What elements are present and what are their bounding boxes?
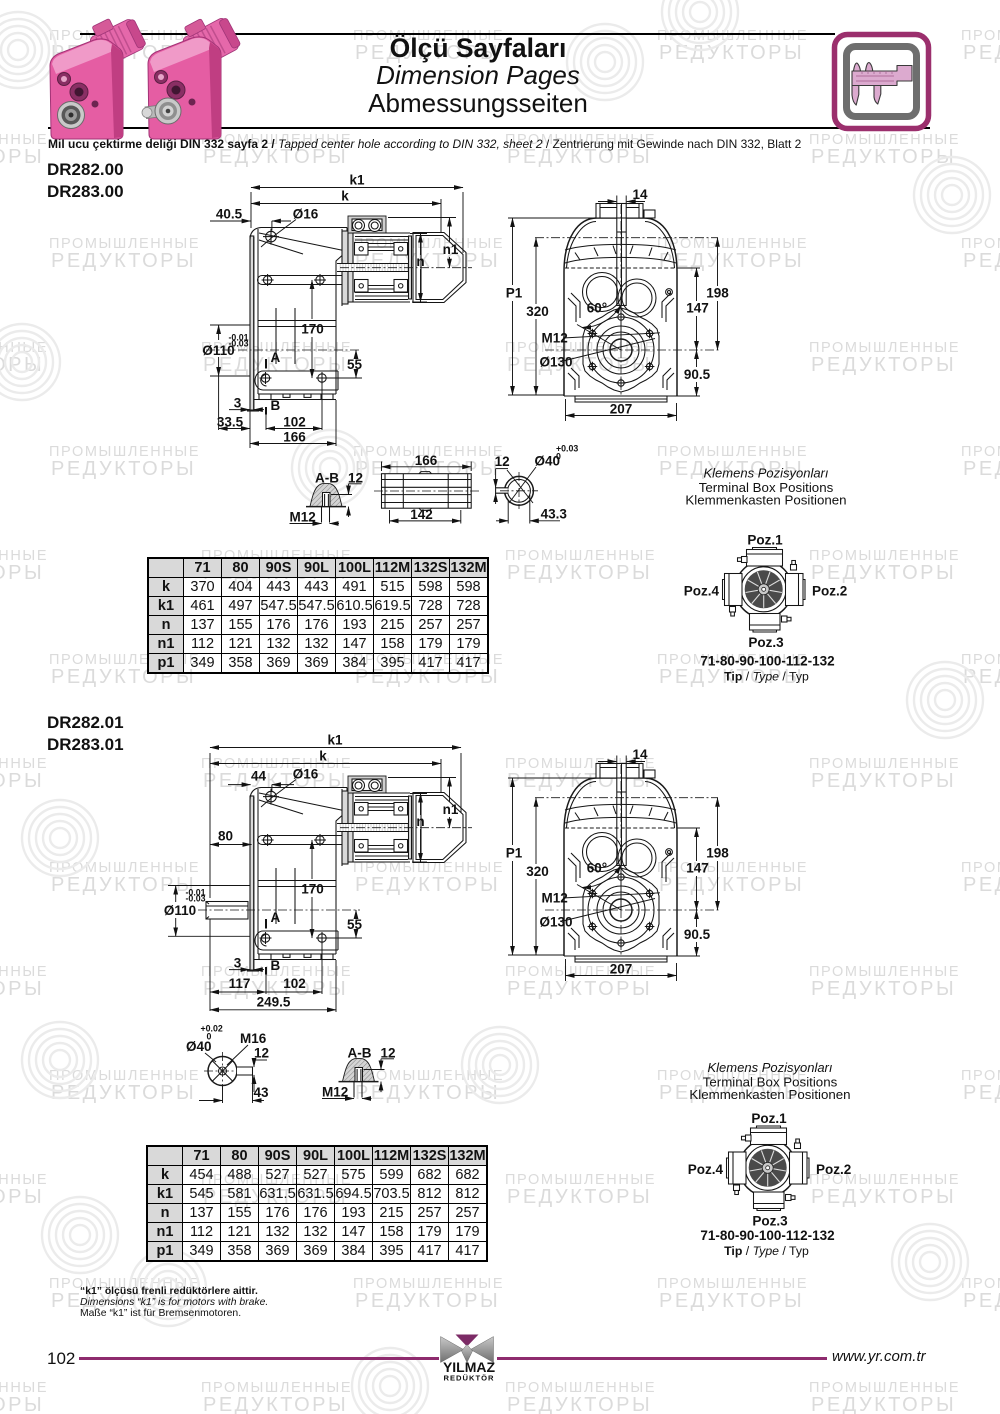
- svg-text:33.5: 33.5: [217, 414, 244, 429]
- svg-text:14: 14: [632, 187, 648, 202]
- svg-text:Poz.1: Poz.1: [747, 533, 783, 548]
- svg-text:M12: M12: [290, 510, 316, 525]
- svg-text:A-B: A-B: [315, 470, 339, 485]
- svg-text:117: 117: [229, 976, 251, 991]
- svg-text:166: 166: [415, 453, 438, 468]
- svg-text:170: 170: [301, 321, 324, 336]
- svg-text:-0.03: -0.03: [186, 894, 206, 904]
- svg-text:Ø110: Ø110: [164, 903, 196, 918]
- svg-text:B: B: [271, 398, 281, 413]
- svg-text:12: 12: [348, 470, 363, 485]
- svg-text:k1: k1: [327, 733, 343, 748]
- svg-text:k: k: [341, 189, 349, 204]
- svg-text:k: k: [319, 749, 327, 764]
- svg-text:55: 55: [347, 917, 363, 932]
- svg-text:3: 3: [234, 955, 242, 970]
- svg-text:k1: k1: [349, 173, 365, 188]
- svg-text:Klemens Pozisyonları: Klemens Pozisyonları: [704, 466, 829, 481]
- svg-text:A: A: [271, 350, 281, 365]
- svg-text:102: 102: [283, 414, 306, 429]
- svg-text:Klemmenkasten Positionen: Klemmenkasten Positionen: [685, 493, 846, 508]
- svg-text:Ø16: Ø16: [293, 206, 319, 221]
- svg-text:3: 3: [234, 395, 242, 410]
- svg-text:n1: n1: [443, 802, 459, 817]
- svg-text:A: A: [271, 910, 281, 925]
- svg-text:n: n: [416, 814, 424, 829]
- svg-text:55: 55: [347, 357, 363, 372]
- svg-text:M16: M16: [240, 1031, 267, 1046]
- svg-text:P1: P1: [506, 286, 523, 301]
- svg-text:249.5: 249.5: [257, 994, 291, 1009]
- svg-text:B: B: [271, 958, 281, 973]
- svg-text:90.5: 90.5: [684, 367, 711, 382]
- svg-text:43.3: 43.3: [541, 506, 568, 521]
- svg-text:Poz.3: Poz.3: [748, 635, 784, 650]
- svg-text:40.5: 40.5: [216, 206, 243, 221]
- svg-text:Poz.4: Poz.4: [684, 584, 720, 599]
- svg-text:Tip / Type / Typ: Tip / Type / Typ: [724, 670, 809, 684]
- svg-text:43: 43: [253, 1085, 269, 1100]
- svg-text:102: 102: [283, 976, 306, 991]
- svg-text:Ø16: Ø16: [293, 766, 319, 781]
- svg-text:147: 147: [686, 301, 709, 316]
- svg-text:REDÜKTÖR: REDÜKTÖR: [443, 1374, 494, 1383]
- svg-text:0: 0: [556, 452, 561, 462]
- svg-text:60°: 60°: [587, 301, 607, 316]
- svg-text:198: 198: [706, 286, 729, 301]
- svg-text:71-80-90-100-112-132: 71-80-90-100-112-132: [700, 654, 834, 669]
- svg-text:Ø40: Ø40: [186, 1039, 212, 1054]
- svg-text:Poz.2: Poz.2: [812, 584, 847, 599]
- svg-text:12: 12: [495, 454, 510, 469]
- svg-text:142: 142: [410, 507, 433, 522]
- svg-text:n1: n1: [443, 242, 459, 257]
- svg-text:-0.03: -0.03: [229, 339, 249, 349]
- svg-text:Ø130: Ø130: [540, 355, 573, 370]
- svg-text:12: 12: [254, 1046, 269, 1061]
- svg-text:166: 166: [283, 429, 306, 444]
- svg-text:+0.02: +0.02: [201, 1024, 223, 1034]
- svg-text:44: 44: [251, 769, 267, 784]
- svg-text:207: 207: [610, 402, 633, 417]
- svg-text:n: n: [416, 254, 424, 269]
- svg-text:80: 80: [218, 829, 233, 844]
- svg-text:320: 320: [526, 304, 549, 319]
- svg-text:170: 170: [301, 881, 324, 896]
